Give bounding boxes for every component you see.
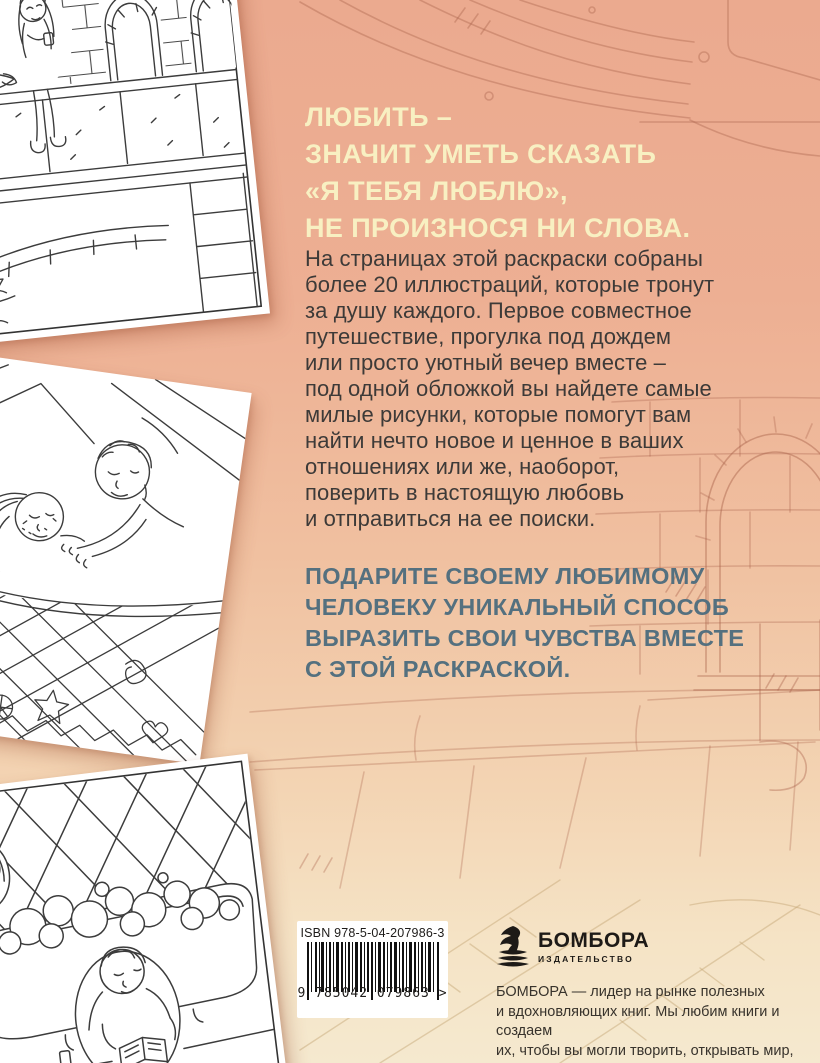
description-line: милые рисунки, которые помогут вам: [305, 402, 714, 428]
quote-line: «Я ТЕБЯ ЛЮБЛЮ»,: [305, 173, 690, 210]
description-line: и отправиться на ее поиски.: [305, 506, 714, 532]
gift-call-to-action: ПОДАРИТЕ СВОЕМУ ЛЮБИМОМУЧЕЛОВЕКУ УНИКАЛЬ…: [305, 561, 744, 685]
isbn-number: ISBN 978-5-04-207986-3: [297, 926, 448, 940]
description-line: за душу каждого. Первое совместное: [305, 298, 714, 324]
bombora-logo-icon: [496, 925, 530, 969]
book-back-cover: ЛЮБИТЬ –ЗНАЧИТ УМЕТЬ СКАЗАТЬ«Я ТЕБЯ ЛЮБЛ…: [0, 0, 820, 1063]
bubble-bath-illustration: [0, 759, 282, 1063]
publisher-logo-text: БОМБОРА ИЗДАТЕЛЬСТВО: [538, 929, 649, 964]
publisher-line: их, чтобы вы могли творить, открывать ми…: [496, 1042, 816, 1063]
publisher-line: БОМБОРА — лидер на рынке полезных: [496, 983, 816, 1003]
headline-quote: ЛЮБИТЬ –ЗНАЧИТ УМЕТЬ СКАЗАТЬ«Я ТЕБЯ ЛЮБЛ…: [305, 99, 690, 247]
quote-line: ЛЮБИТЬ –: [305, 99, 690, 136]
cta-line: С ЭТОЙ РАСКРАСКОЙ.: [305, 654, 744, 685]
cta-line: ПОДАРИТЕ СВОЕМУ ЛЮБИМОМУ: [305, 561, 744, 592]
description-line: под одной обложкой вы найдете самые: [305, 376, 714, 402]
publisher-line: и вдохновляющих книг. Мы любим книги и с…: [496, 1003, 816, 1042]
isbn-barcode-block: ISBN 978-5-04-207986-3: [297, 921, 448, 1018]
description-line: путешествие, прогулка под дождем: [305, 324, 714, 350]
quote-line: ЗНАЧИТ УМЕТЬ СКАЗАТЬ: [305, 136, 690, 173]
description-line: или просто уютный вечер вместе –: [305, 350, 714, 376]
coloring-page-preview-bridge: [0, 0, 270, 348]
cta-line: ЧЕЛОВЕКУ УНИКАЛЬНЫЙ СПОСОБ: [305, 592, 744, 623]
barcode-digits: 9 785042 079863 >: [297, 986, 448, 1001]
publisher-block: БОМБОРА ИЗДАТЕЛЬСТВО БОМБОРА — лидер на …: [496, 925, 816, 1063]
coloring-page-preview-bath: [0, 754, 288, 1063]
publisher-description: БОМБОРА — лидер на рынке полезныхи вдохн…: [496, 983, 816, 1063]
bridge-couple-illustration: [0, 0, 263, 341]
coloring-page-preview-bed: [0, 345, 252, 764]
description-line: найти нечто новое и ценное в ваших: [305, 428, 714, 454]
publisher-logo-row: БОМБОРА ИЗДАТЕЛЬСТВО: [496, 925, 816, 969]
publisher-type: ИЗДАТЕЛЬСТВО: [538, 954, 649, 964]
description-line: более 20 иллюстраций, которые тронут: [305, 272, 714, 298]
description-line: На страницах этой раскраски собраны: [305, 246, 714, 272]
description-line: поверить в настоящую любовь: [305, 480, 714, 506]
description-line: отношениях или же, наоборот,: [305, 454, 714, 480]
sleeping-couple-illustration: [0, 345, 252, 764]
cta-line: ВЫРАЗИТЬ СВОИ ЧУВСТВА ВМЕСТЕ: [305, 623, 744, 654]
quote-line: НЕ ПРОИЗНОСЯ НИ СЛОВА.: [305, 210, 690, 247]
description-text: На страницах этой раскраски собраныболее…: [305, 246, 714, 532]
publisher-name: БОМБОРА: [538, 929, 649, 953]
